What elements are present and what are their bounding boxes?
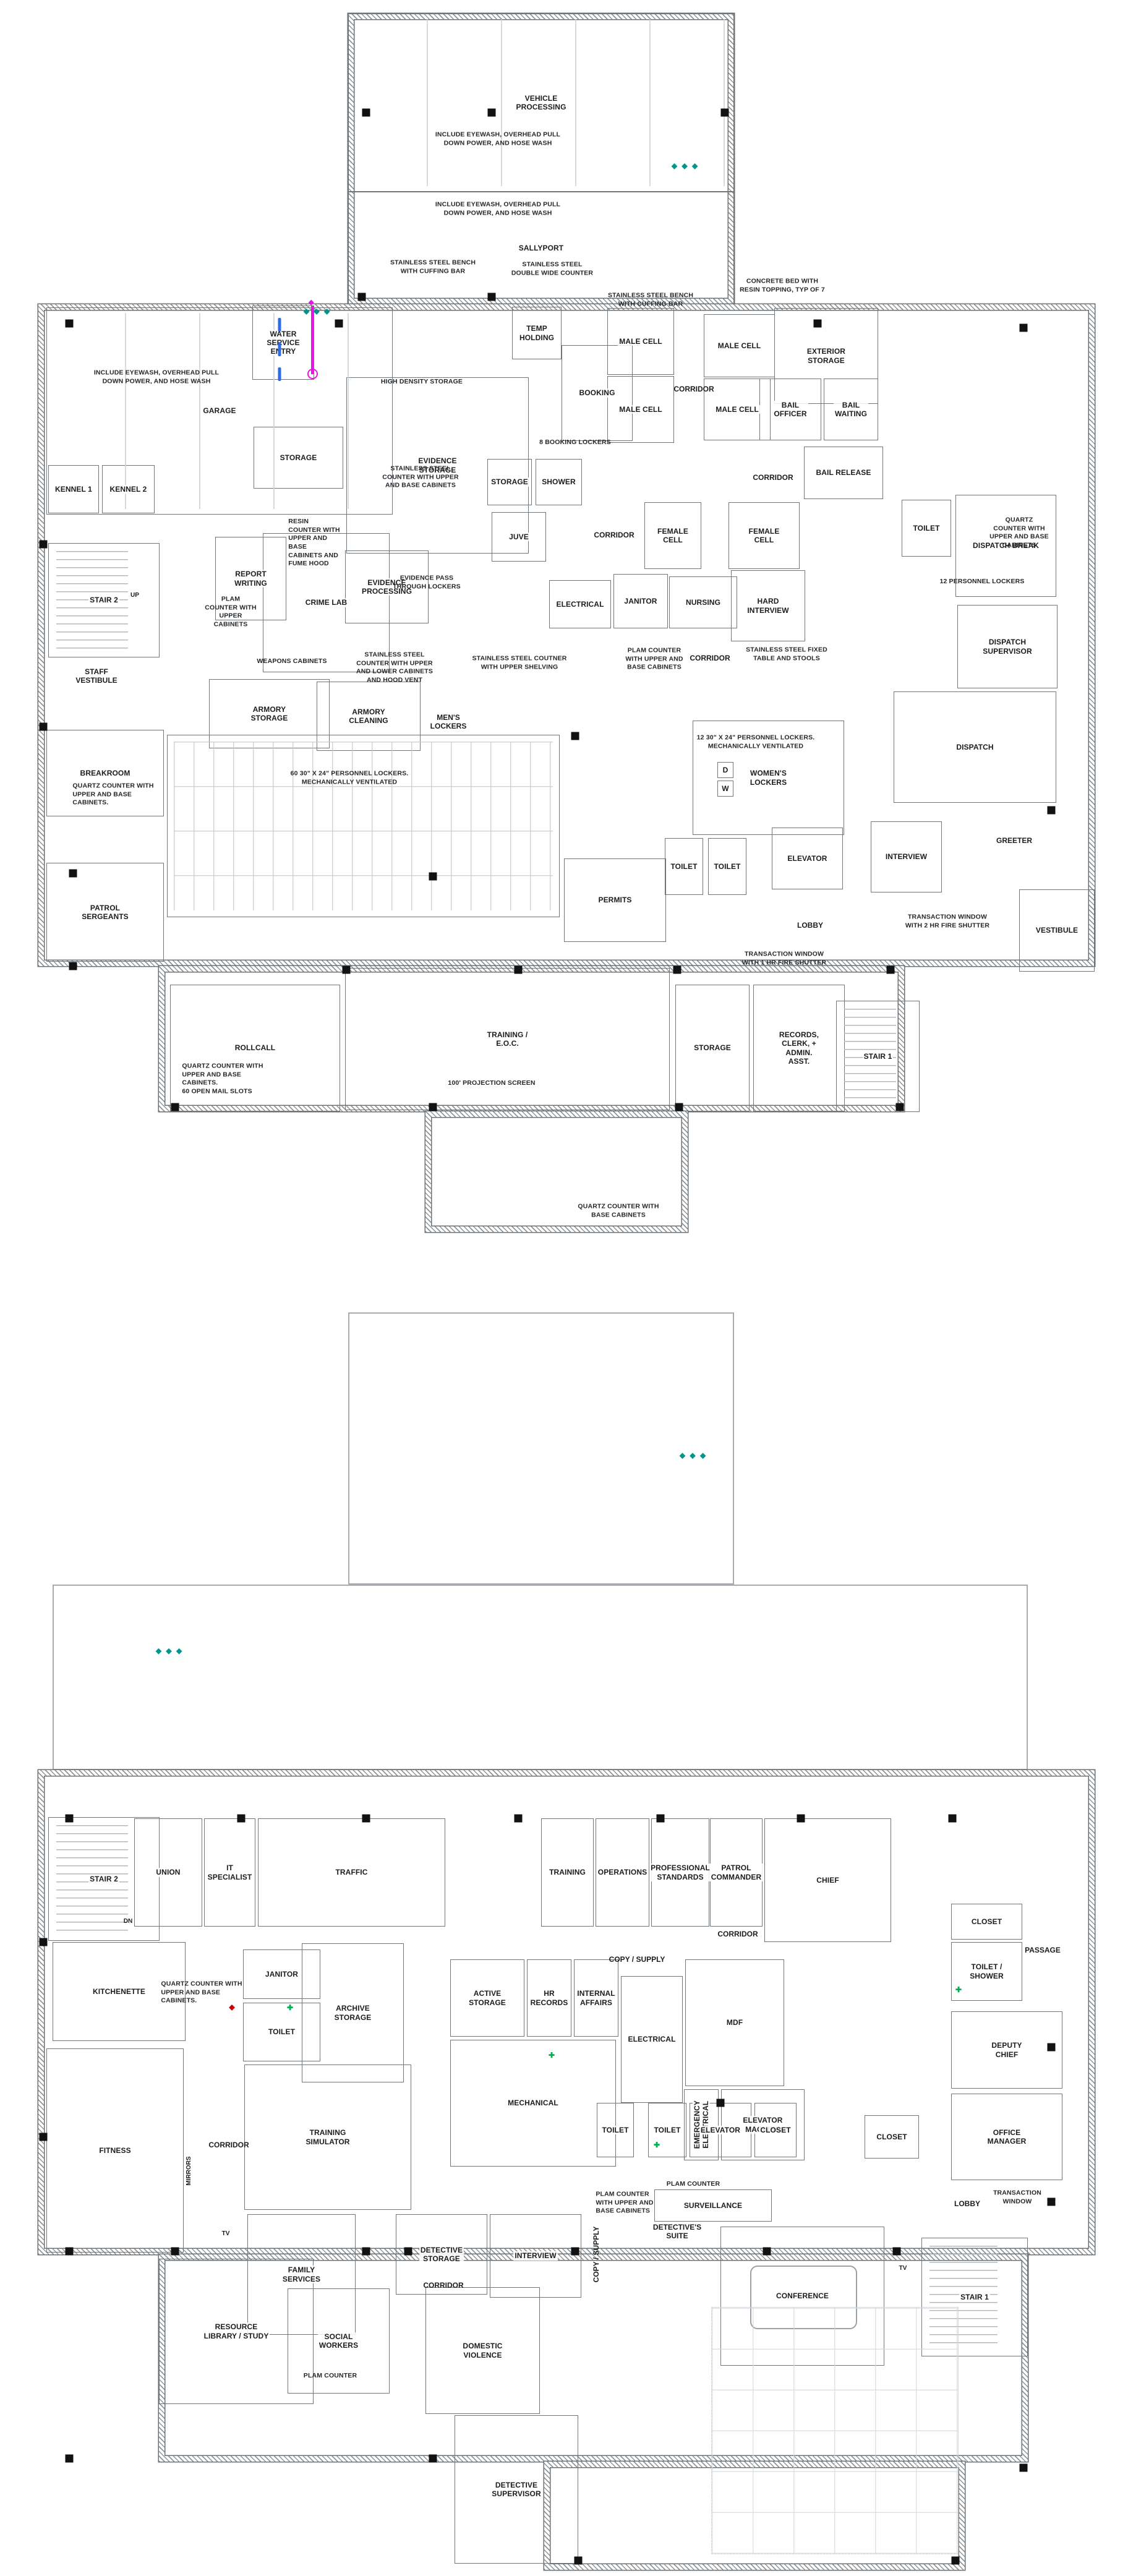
- room-label: OPERATIONS: [597, 1868, 648, 1876]
- green-plus-marker: ✚: [287, 2003, 293, 2012]
- room-label: NURSING: [685, 598, 722, 607]
- room-it-specialist: IT SPECIALIST: [204, 1818, 255, 1927]
- room-area: [167, 735, 560, 917]
- room-detective-supervisor: DETECTIVE SUPERVISOR: [455, 2415, 578, 2564]
- annotation: TRANSACTION WINDOW: [993, 2189, 1041, 2206]
- column-marker: [69, 870, 77, 878]
- room-label: WATER SERVICE ENTRY: [265, 330, 301, 356]
- blue-bar-icon: [278, 318, 281, 332]
- room-label: MALE CELL: [717, 341, 763, 350]
- annotation: PLAM COUNTER WITH UPPER CABINETS: [205, 596, 256, 630]
- room-label: DISPATCH SUPERVISOR: [981, 638, 1033, 655]
- desks-deco: [711, 2307, 959, 2554]
- room-label: STAIR 2: [88, 596, 119, 604]
- annotation: STAINLESS STEEL FIXED TABLE AND STOOLS: [746, 646, 827, 662]
- room-label: PATROL COMMANDER: [710, 1864, 763, 1881]
- annotation: INCLUDE EYEWASH, OVERHEAD PULL DOWN POWE…: [435, 131, 560, 147]
- room-union: UNION: [134, 1818, 202, 1927]
- blue-bar-icon: [278, 343, 281, 356]
- area-label-corridor: CORRIDOR: [673, 385, 714, 393]
- annotation: 60 30" X 24" PERSONNEL LOCKERS. MECHANIC…: [291, 769, 409, 786]
- column-marker: [575, 2557, 583, 2565]
- room-label: VESTIBULE: [1035, 926, 1079, 935]
- room-label: DEPUTY CHIEF: [990, 2041, 1023, 2058]
- room-garage: GARAGE: [46, 307, 393, 515]
- room-label: TOILET: [267, 2027, 296, 2036]
- column-marker: [721, 109, 729, 117]
- column-marker: [40, 1938, 48, 1946]
- annotation: QUARTZ COUNTER WITH UPPER AND BASE CABIN…: [182, 1063, 263, 1097]
- area-label-copy-supply: COPY / SUPPLY: [609, 1955, 665, 1964]
- column-marker: [40, 723, 48, 731]
- annotation: QUARTZ COUNTER WITH UPPER AND BASE CABIN…: [72, 782, 153, 808]
- room-operations: OPERATIONS: [596, 1818, 649, 1927]
- room-label: FITNESS: [98, 2146, 132, 2155]
- area-label-passage: PASSAGE: [1025, 1946, 1061, 1954]
- room-label: ELEVATOR: [699, 2126, 741, 2134]
- blue-bar-icon: [278, 367, 281, 381]
- area-label-lobby: LOBBY: [797, 921, 823, 930]
- room-label: STAIR 1: [959, 2293, 990, 2301]
- column-marker: [429, 1103, 437, 1111]
- teal-diamonds-marker: ◆ ◆ ◆: [680, 1451, 707, 1460]
- teal-diamonds-marker: ◆ ◆ ◆: [156, 1646, 183, 1655]
- room-label: ELEVATOR: [786, 854, 828, 863]
- column-marker: [362, 2248, 370, 2256]
- area-label-corridor: CORRIDOR: [753, 473, 793, 482]
- room-label: CRIME LAB: [304, 598, 349, 607]
- building-shell: [348, 1312, 734, 1585]
- column-marker: [571, 732, 579, 740]
- column-marker: [362, 109, 370, 117]
- column-marker: [66, 2455, 74, 2463]
- annotation: PLAM COUNTER: [667, 2180, 720, 2189]
- room-label: KENNEL 1: [54, 485, 93, 494]
- room-closet: CLOSET: [865, 2115, 919, 2159]
- area-label-greeter: GREETER: [996, 836, 1032, 845]
- room-label: INTERNAL AFFAIRS: [576, 1989, 616, 2006]
- room-label: RESOURCE LIBRARY / STUDY: [203, 2322, 270, 2340]
- room-label: ELECTRICAL: [555, 600, 605, 609]
- column-marker: [571, 2248, 579, 2256]
- column-marker: [488, 109, 496, 117]
- room-label: MALE CELL: [714, 405, 760, 414]
- room-label: TRAFFIC: [334, 1868, 369, 1876]
- annotation: STAINLESS STEEL COUNTER WITH UPPER AND B…: [382, 465, 458, 490]
- column-marker: [66, 1815, 74, 1823]
- room-label: STORAGE: [279, 453, 318, 462]
- room-label: MECHANICAL: [506, 2099, 560, 2107]
- column-marker: [69, 962, 77, 970]
- room-label: CLOSET: [759, 2126, 792, 2134]
- column-marker: [404, 2248, 412, 2256]
- room-surveillance: SURVEILLANCE: [654, 2189, 772, 2222]
- annotation: QUARTZ COUNTER WITH UPPER AND BASE CABIN…: [989, 516, 1049, 550]
- room-label: DETECTIVE STORAGE: [419, 2246, 464, 2263]
- room-area: [711, 2307, 959, 2554]
- room-active-storage: ACTIVE STORAGE: [450, 1959, 524, 2037]
- room-label: MALE CELL: [618, 405, 664, 414]
- column-marker: [515, 1815, 523, 1823]
- column-marker: [335, 320, 343, 328]
- teal-diamonds-marker: ◆ ◆ ◆: [672, 161, 699, 170]
- annotation: RESIN COUNTER WITH UPPER AND BASE CABINE…: [288, 518, 340, 568]
- room-label: OFFICE MANAGER: [986, 2128, 1028, 2146]
- column-marker: [429, 2455, 437, 2463]
- annotation: INCLUDE EYEWASH, OVERHEAD PULL DOWN POWE…: [435, 200, 560, 217]
- annotation: 8 BOOKING LOCKERS: [539, 439, 611, 447]
- column-marker: [1048, 2043, 1056, 2052]
- area-label-tv: TV: [222, 2230, 230, 2238]
- room-label: SURVEILLANCE: [683, 2201, 743, 2210]
- building-shell: [53, 1585, 1028, 1770]
- green-plus-marker: ✚: [654, 2141, 660, 2149]
- room-hr-records: HR RECORDS: [527, 1959, 571, 2037]
- room-label: PATROL SERGEANTS: [80, 904, 130, 921]
- annotation: STAINLESS STEEL COUTNER WITH UPPER SHELV…: [472, 654, 567, 671]
- annotation: PLAM COUNTER: [304, 2372, 357, 2381]
- column-marker: [1020, 324, 1028, 332]
- column-marker: [171, 2248, 179, 2256]
- annotation: INCLUDE EYEWASH, OVERHEAD PULL DOWN POWE…: [94, 369, 219, 385]
- room-label: CONFERENCE: [775, 2291, 830, 2300]
- room-label: TOILET: [652, 2126, 681, 2134]
- column-marker: [952, 2557, 960, 2565]
- column-marker: [362, 1815, 370, 1823]
- area-label-mirrors: MIRRORS: [186, 2156, 193, 2185]
- annotation: 100' PROJECTION SCREEN: [448, 1079, 535, 1088]
- column-marker: [343, 966, 351, 974]
- green-plus-marker: ✚: [549, 2051, 555, 2060]
- room-label: TEMP HOLDING: [518, 324, 555, 341]
- annotation: PLAM COUNTER WITH UPPER AND BASE CABINET…: [596, 2191, 653, 2216]
- column-marker: [673, 966, 681, 974]
- area-label-corridor: CORRIDOR: [690, 654, 730, 662]
- room-label: HARD INTERVIEW: [746, 597, 790, 614]
- column-marker: [814, 320, 822, 328]
- column-marker: [763, 2248, 771, 2256]
- room-internal-affairs: INTERNAL AFFAIRS: [574, 1959, 618, 2037]
- annotation: 12 30" X 24" PERSONNEL LOCKERS. MECHANIC…: [697, 734, 815, 750]
- annotation: TRANSACTION WINDOW WITH 2 HR FIRE SHUTTE…: [905, 913, 989, 930]
- room-training-simulator: TRAINING SIMULATOR: [244, 2065, 411, 2210]
- column-marker: [896, 1103, 904, 1111]
- room-label: TOILET: [600, 2126, 630, 2134]
- room-label: DETECTIVE SUPERVISOR: [490, 2481, 542, 2498]
- room-label: IT SPECIALIST: [205, 1864, 255, 1881]
- area-label-up: UP: [130, 592, 139, 599]
- room-label: TRAINING / E.O.C.: [486, 1030, 529, 1048]
- annotation: STAINLESS STEEL DOUBLE WIDE COUNTER: [511, 260, 593, 277]
- column-marker: [657, 1815, 665, 1823]
- room-label: MDF: [725, 2018, 744, 2027]
- room-training: TRAINING: [541, 1818, 594, 1927]
- room-label: ARCHIVE STORAGE: [333, 2004, 373, 2021]
- room-electrical: ELECTRICAL: [621, 1976, 683, 2103]
- room-label: FEMALE CELL: [748, 527, 781, 544]
- column-marker: [1048, 807, 1056, 815]
- room-closet: CLOSET: [951, 1904, 1022, 1940]
- column-marker: [40, 541, 48, 549]
- room-label: BREAKROOM: [79, 769, 132, 777]
- room-toilet-shower: TOILET / SHOWER: [951, 1942, 1022, 2001]
- column-marker: [237, 1815, 246, 1823]
- room-deputy-chief: DEPUTY CHIEF: [951, 2011, 1062, 2089]
- room-closet: CLOSET: [754, 2103, 797, 2157]
- room-label: KENNEL 2: [109, 485, 148, 494]
- room-label: TOILET: [912, 524, 941, 533]
- room-label: JANITOR: [264, 1970, 299, 1979]
- lockers-deco: [174, 742, 553, 910]
- room-label: SOCIAL WORKERS: [318, 2332, 359, 2350]
- green-plus-marker: ✚: [955, 1985, 962, 1994]
- column-marker: [488, 293, 496, 301]
- room-label: STAIR 1: [863, 1052, 894, 1061]
- room-label: PROFESSIONAL STANDARDS: [649, 1864, 711, 1881]
- room-label: EXTERIOR STORAGE: [806, 347, 847, 364]
- room-office-manager: OFFICE MANAGER: [951, 2094, 1062, 2180]
- area-label-staff-vestibule: STAFF VESTIBULE: [75, 667, 117, 685]
- room-label: FEMALE CELL: [656, 527, 690, 544]
- room-label: SALLYPORT: [518, 244, 565, 252]
- room-label: KITCHENETTE: [92, 1987, 147, 1996]
- annotation: CONCRETE BED WITH RESIN TOPPING, TYP OF …: [740, 277, 825, 294]
- red-diamond-marker: ◆: [229, 2003, 234, 2011]
- room-label: MALE CELL: [618, 337, 664, 346]
- room-label: JANITOR: [623, 597, 658, 605]
- room-label: BOOKING: [578, 388, 616, 397]
- room-professional-standards: PROFESSIONAL STANDARDS: [651, 1818, 709, 1927]
- room-label: BAIL OFFICER: [772, 401, 808, 418]
- column-marker: [358, 293, 366, 301]
- room-label: W: [720, 784, 730, 793]
- room-label: TRAINING: [548, 1868, 587, 1876]
- room-label: ARMORY STORAGE: [250, 705, 289, 722]
- valve-icon: [307, 369, 318, 379]
- room-label: DOMESTIC VIOLENCE: [461, 2342, 503, 2359]
- room-label: HR RECORDS: [529, 1989, 570, 2006]
- area-label-detective-s-suite: DETECTIVE'S SUITE: [653, 2223, 701, 2240]
- annotation: HIGH DENSITY STORAGE: [381, 378, 463, 387]
- room-mdf: MDF: [685, 1959, 784, 2086]
- column-marker: [797, 1815, 805, 1823]
- plumbing-marker: [311, 306, 314, 374]
- floor-plan-canvas: VEHICLE PROCESSINGSALLYPORTGARAGEKENNEL …: [0, 0, 1128, 2576]
- room-label: CLOSET: [970, 1917, 1003, 1926]
- area-label-corridor: CORRIDOR: [423, 2281, 463, 2290]
- room-label: DISPATCH: [955, 743, 994, 751]
- room-label: STORAGE: [490, 477, 529, 486]
- column-marker: [887, 966, 895, 974]
- room-label: RECORDS, CLERK, + ADMIN. ASST.: [778, 1030, 820, 1066]
- area-label-corridor: CORRIDOR: [717, 1930, 758, 1938]
- column-marker: [66, 320, 74, 328]
- column-marker: [949, 1815, 957, 1823]
- room-fitness: FITNESS: [46, 2048, 184, 2253]
- room-label: ROLLCALL: [234, 1043, 276, 1052]
- column-marker: [66, 2248, 74, 2256]
- room-toilet: TOILET: [597, 2103, 634, 2157]
- column-marker: [893, 2248, 901, 2256]
- room-label: BAIL RELEASE: [815, 468, 873, 477]
- room-label: ACTIVE STORAGE: [468, 1989, 507, 2006]
- pipe-line-icon: [311, 306, 314, 374]
- room-label: TRAINING SIMULATOR: [304, 2128, 351, 2146]
- room-traffic: TRAFFIC: [258, 1818, 445, 1927]
- room-label: GARAGE: [202, 406, 237, 415]
- annotation: PLAM COUNTER WITH UPPER AND BASE CABINET…: [625, 647, 683, 672]
- room-domestic-violence: DOMESTIC VIOLENCE: [425, 2287, 540, 2414]
- room-label: STORAGE: [693, 1043, 732, 1052]
- room-label: CHIEF: [815, 1876, 840, 1885]
- room-label: REPORT WRITING: [233, 570, 268, 587]
- annotation: 12 PERSONNEL LOCKERS: [939, 578, 1024, 586]
- room-label: WOMEN'S LOCKERS: [749, 769, 788, 786]
- room-label: CLOSET: [875, 2133, 908, 2141]
- room-label: BAIL WAITING: [834, 401, 868, 418]
- room-label: TOILET: [669, 862, 698, 871]
- column-marker: [515, 966, 523, 974]
- room-label: STAIR 2: [88, 1875, 119, 1883]
- area-label-corridor: CORRIDOR: [208, 2141, 249, 2149]
- column-marker: [1048, 2198, 1056, 2206]
- area-label-tv: TV: [899, 2265, 907, 2272]
- area-label-copy-supply: COPY / SUPPLY: [592, 2227, 600, 2283]
- room-label: INTERVIEW: [513, 2251, 557, 2260]
- room-label: PERMITS: [597, 896, 633, 904]
- room-label: ARMORY CLEANING: [348, 708, 389, 725]
- room-archive-storage: ARCHIVE STORAGE: [302, 1943, 404, 2082]
- room-label: ELECTRICAL: [627, 2035, 677, 2043]
- room-mechanical: MECHANICAL: [450, 2040, 616, 2167]
- room-label: TOILET: [712, 862, 741, 871]
- room-label: TOILET / SHOWER: [968, 1962, 1005, 1980]
- teal-diamonds-marker: ◆ ◆ ◆: [304, 307, 331, 315]
- room-label: UNION: [155, 1868, 181, 1876]
- annotation: STAINLESS STEEL COUNTER WITH UPPER AND L…: [356, 651, 433, 685]
- column-marker: [171, 1103, 179, 1111]
- annotation: WEAPONS CABINETS: [257, 657, 327, 666]
- area-label-lobby: LOBBY: [954, 2199, 980, 2208]
- room-label: INTERVIEW: [884, 852, 928, 861]
- room-label: SHOWER: [540, 477, 577, 486]
- area-label-corridor: CORRIDOR: [594, 531, 634, 539]
- column-marker: [1020, 2464, 1028, 2472]
- column-marker: [40, 2133, 48, 2141]
- annotation: STAINLESS STEEL BENCH WITH CUFFING BAR: [608, 291, 693, 308]
- area-label-dn: DN: [124, 1918, 132, 1925]
- annotation: STAINLESS STEEL BENCH WITH CUFFING BAR: [390, 259, 476, 275]
- room-interview: INTERVIEW: [490, 2214, 581, 2298]
- annotation: EVIDENCE PASS THROUGH LOCKERS: [393, 574, 461, 591]
- blue-bars-marker: [278, 318, 281, 381]
- annotation: QUARTZ COUNTER WITH UPPER AND BASE CABIN…: [161, 1980, 242, 2006]
- column-marker: [717, 2099, 725, 2107]
- area-label-men-s-lockers: MEN'S LOCKERS: [430, 713, 467, 730]
- annotation: QUARTZ COUNTER WITH BASE CABINETS: [578, 1202, 659, 1219]
- room-label: VEHICLE PROCESSING: [515, 94, 567, 111]
- annotation: TRANSACTION WINDOW WITH 1 HR FIRE SHUTTE…: [742, 950, 826, 967]
- room-label: EMERGENCY ELECTRICAL: [693, 2099, 710, 2150]
- room-label: D: [722, 766, 730, 774]
- room-label: FAMILY SERVICES: [281, 2266, 322, 2283]
- column-marker: [429, 873, 437, 881]
- room-label: JUVE: [508, 533, 530, 541]
- room-patrol-commander: PATROL COMMANDER: [710, 1818, 763, 1927]
- room-chief: CHIEF: [764, 1818, 891, 1942]
- column-marker: [675, 1103, 683, 1111]
